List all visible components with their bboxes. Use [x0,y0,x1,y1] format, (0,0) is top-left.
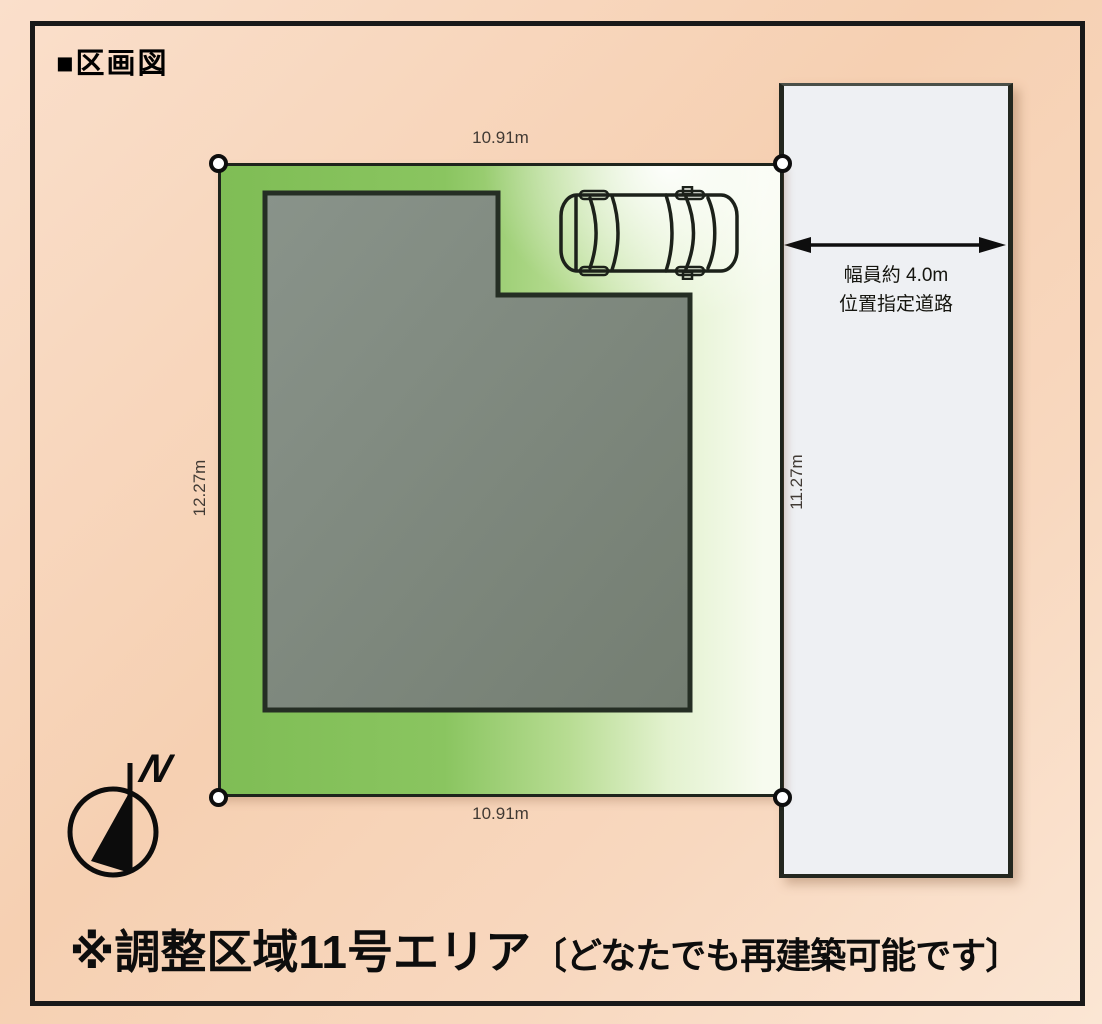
road-type-label: 位置指定道路 [779,291,1013,320]
boundary-marker-top-left [209,154,228,173]
road-width-label: 幅員約 4.0m [779,262,1013,291]
site-plan-canvas: ■区画図 幅員約 4.0m 位置指定道路 [0,0,1102,1024]
page-title: ■区画図 [56,40,169,82]
road-width-arrow-icon [784,233,1006,257]
boundary-marker-top-right [773,154,792,173]
footer-note: ※調整区域11号エリア〔どなたでも再建築可能です〕 [45,916,1045,982]
dimension-top-label: 10.91m [218,128,783,148]
footer-area-text: ※調整区域11号エリア [70,926,531,978]
footer-rebuild-note: 〔どなたでも再建築可能です〕 [531,935,1020,976]
road-area [779,83,1013,878]
dimension-bottom-label: 10.91m [218,804,783,824]
dimension-right-label: 11.27m [787,420,807,544]
dimension-left-label: 12.27m [190,426,210,550]
road-label: 幅員約 4.0m 位置指定道路 [779,262,1013,319]
car-icon [556,186,742,280]
north-arrow-icon: N [55,735,175,885]
north-label: N [134,746,175,791]
